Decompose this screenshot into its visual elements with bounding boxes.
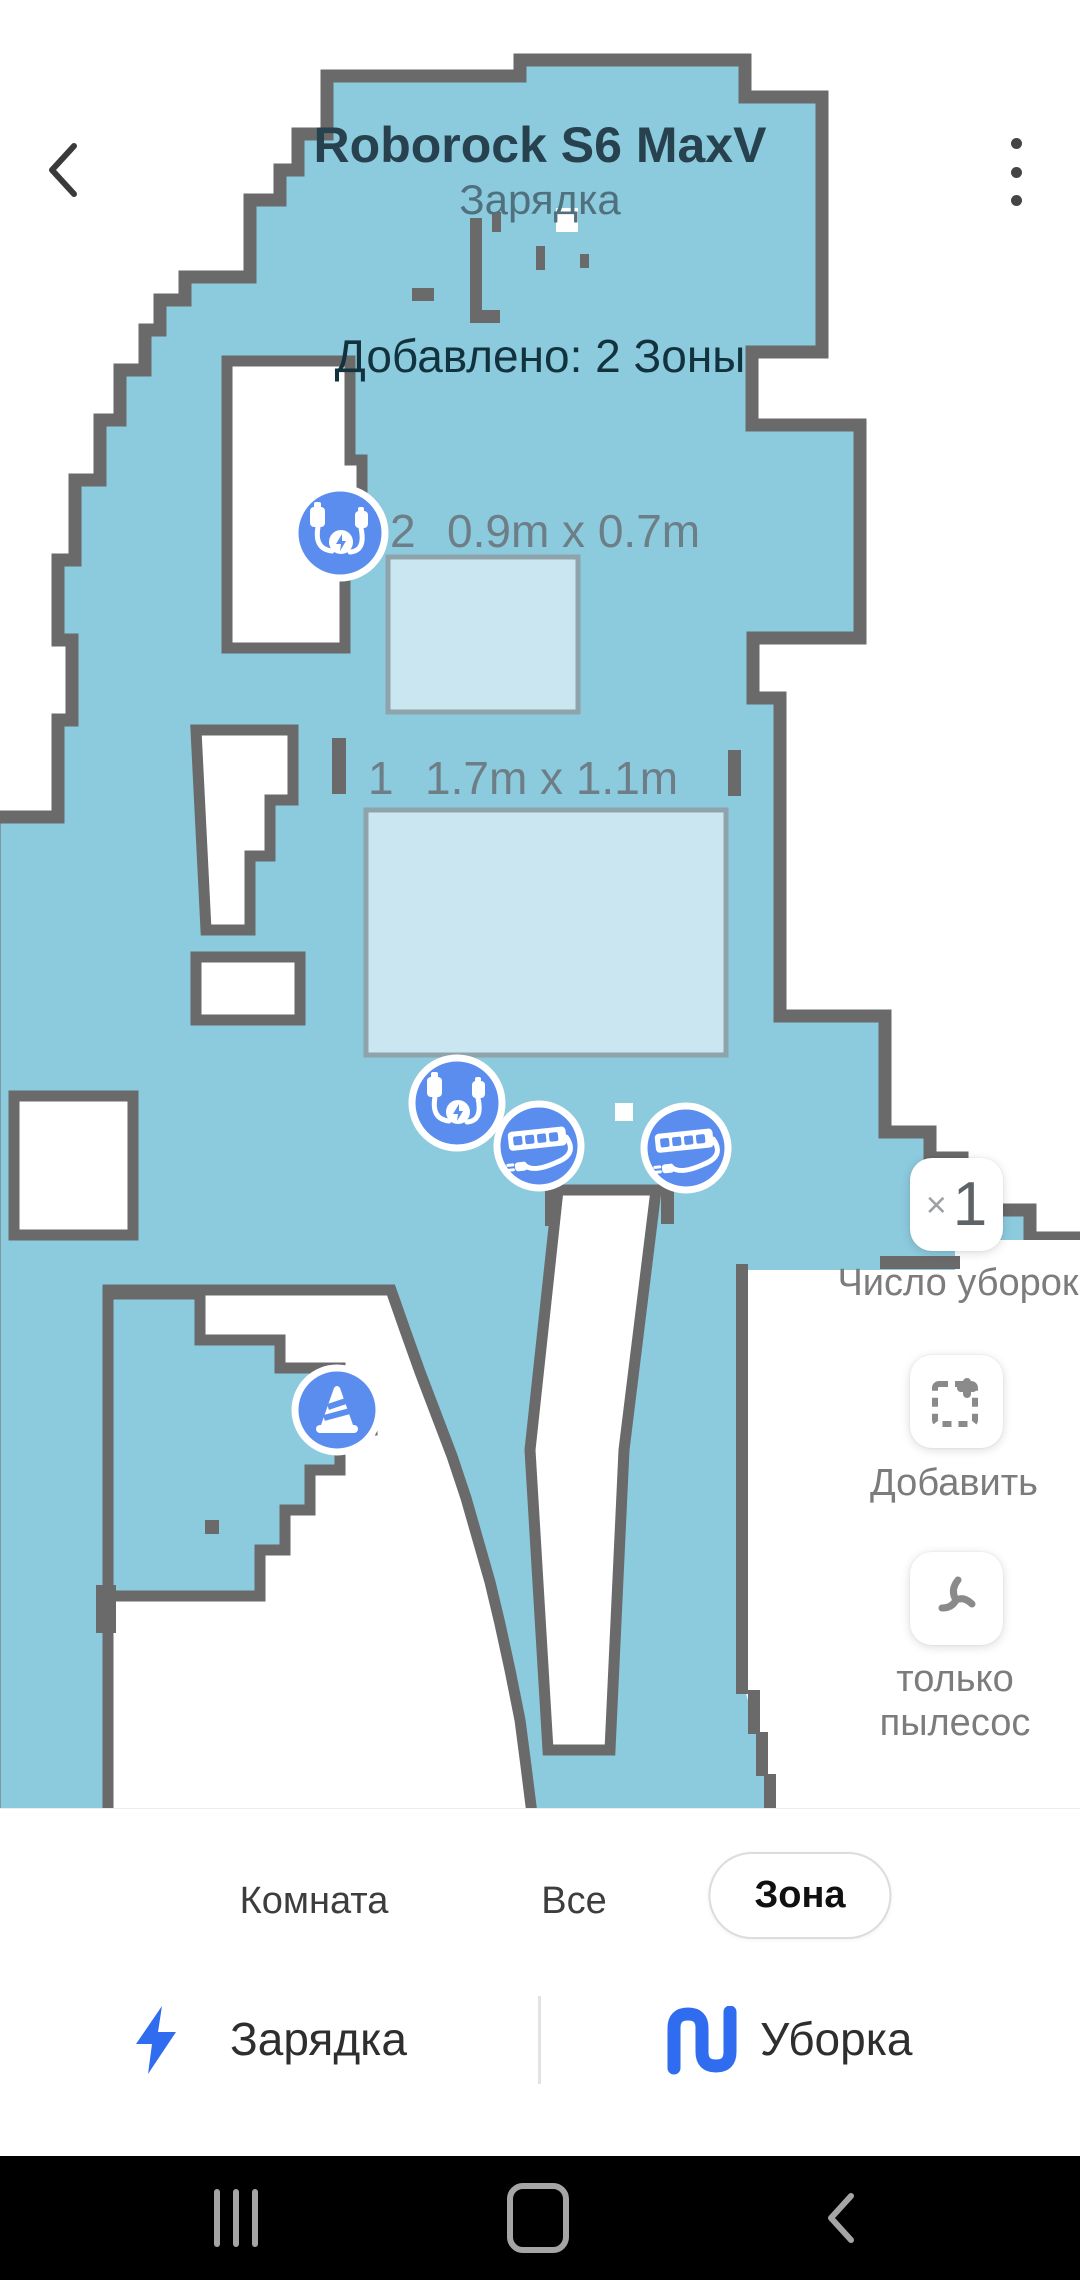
charging-cable-obstacle-icon[interactable] [412,1058,502,1148]
vacuum-only-label-line1: только [896,1658,1013,1701]
menu-dot [1011,138,1022,149]
lightning-icon [128,2004,184,2076]
add-zone-icon [929,1374,985,1430]
zone-1-id: 1 [368,752,394,804]
zone-2-id: 2 [390,505,416,557]
vacuum-map[interactable]: 2 0.9m x 0.7m 1 1.7m x 1.1m Roborock S6 … [0,0,1080,1810]
fan-icon [928,1570,986,1628]
charge-label[interactable]: Зарядка [230,2012,407,2066]
clean-count-label: Число уборок [837,1262,1078,1305]
back-button[interactable] [34,138,94,202]
charging-cable-obstacle-icon[interactable] [295,488,385,578]
clean-count-value: 1 [953,1169,987,1240]
clean-count-button[interactable]: × 1 [910,1158,1003,1251]
add-zone-button[interactable] [910,1355,1003,1448]
tab-all[interactable]: Все [531,1862,616,1941]
clean-path-icon [664,2006,740,2076]
clean-label[interactable]: Уборка [760,2012,912,2066]
clean-button[interactable] [664,2006,740,2081]
map-unexplored-area [14,1096,133,1235]
vacuum-only-button[interactable] [910,1552,1003,1645]
zone-2-size: 0.9m x 0.7m [447,505,700,557]
map-unexplored-area [196,957,300,1020]
add-zone-label: Добавить [870,1462,1038,1505]
charge-button[interactable] [128,2004,184,2081]
device-status: Зарядка [459,176,621,223]
clean-count-prefix: × [926,1184,947,1226]
cone-obstacle-icon[interactable] [295,1368,379,1452]
vacuum-only-label-line2: пылесос [880,1702,1031,1745]
menu-dot [1011,167,1022,178]
more-options-button[interactable] [990,132,1042,212]
power-strip-obstacle-icon[interactable] [497,1104,581,1188]
bottom-sheet [0,1808,1080,2157]
action-divider [538,1996,541,2084]
zones-added-note: Добавлено: 2 Зоны [335,330,746,382]
device-title: Roborock S6 MaxV [314,117,768,173]
zone-1-size: 1.7m x 1.1m [425,752,678,804]
zone-2-rect[interactable] [388,557,578,712]
tab-zone[interactable]: Зона [708,1852,891,1939]
back-icon[interactable] [800,2186,880,2250]
tab-room[interactable]: Комната [230,1862,399,1941]
recent-apps-icon[interactable] [196,2186,276,2250]
home-icon[interactable] [498,2186,578,2250]
menu-dot [1011,195,1022,206]
zone-1-rect[interactable] [366,810,726,1055]
power-strip-obstacle-icon[interactable] [644,1106,728,1190]
